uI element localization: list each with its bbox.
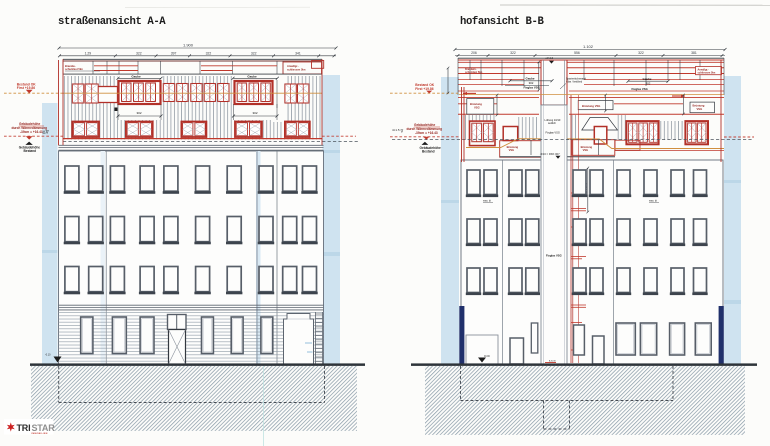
svg-text:1.29: 1.29	[85, 51, 92, 55]
svg-text:322: 322	[638, 51, 644, 55]
svg-text:Fixglas VSG: Fixglas VSG	[524, 86, 540, 90]
svg-text:max. dt: max. dt	[649, 200, 657, 203]
svg-text:Glas / beidbnd: Glas / beidbnd	[566, 81, 583, 84]
svg-text:IMMOBILIEN: IMMOBILIEN	[32, 433, 48, 435]
svg-text:VSG: VSG	[697, 107, 703, 111]
svg-text:STAR: STAR	[32, 423, 56, 433]
svg-text:Brüstung: Brüstung	[507, 145, 519, 149]
svg-text:397: 397	[171, 51, 177, 55]
svg-text:322: 322	[251, 51, 257, 55]
svg-text:381: 381	[691, 51, 697, 55]
svg-text:schliessen 5kn: schliessen 5kn	[698, 71, 716, 74]
svg-text:206: 206	[471, 51, 477, 55]
svg-text:1.102: 1.102	[583, 44, 594, 49]
svg-text:Gaube: Gaube	[131, 75, 141, 79]
svg-text:Anwdlgr.-: Anwdlgr.-	[287, 64, 299, 68]
svg-text:1.900: 1.900	[183, 42, 194, 47]
svg-text:First +19.86: First +19.86	[17, 86, 35, 90]
svg-text:First +19.86: First +19.86	[415, 87, 433, 91]
svg-text:-0.10: -0.10	[45, 354, 51, 357]
svg-text:302: 302	[252, 111, 257, 115]
svg-text:Bestand: Bestand	[422, 150, 435, 154]
svg-text:+24.13: +24.13	[545, 56, 554, 60]
svg-text:Brüstung: Brüstung	[581, 145, 593, 149]
svg-text:straßenansicht A-A: straßenansicht A-A	[58, 16, 166, 28]
svg-text:schliessen 5kn: schliessen 5kn	[287, 68, 306, 72]
svg-text:Δ∇: Δ∇	[43, 129, 50, 134]
svg-text:4×1.5: 4×1.5	[392, 128, 400, 132]
svg-text:-39cm = +16.43: -39cm = +16.43	[20, 130, 43, 134]
svg-text:±0.00: ±0.00	[484, 356, 490, 358]
svg-text:VSG: VSG	[509, 148, 514, 152]
svg-text:322: 322	[136, 51, 142, 55]
svg-text:Brüstung: Brüstung	[693, 104, 705, 108]
svg-text:VSG: VSG	[583, 148, 588, 152]
svg-text:Fixglas VSG: Fixglas VSG	[546, 253, 562, 257]
svg-text:∇: ∇	[400, 129, 404, 134]
svg-text:302: 302	[529, 81, 534, 85]
svg-text:seitlich: seitlich	[548, 121, 556, 125]
svg-text:-39cm = +16.43: -39cm = +16.43	[415, 131, 438, 135]
svg-text:Fixglas VSG: Fixglas VSG	[632, 87, 648, 91]
svg-text:max. dt: max. dt	[483, 200, 491, 203]
svg-text:Gaube: Gaube	[643, 77, 652, 81]
svg-text:322: 322	[206, 51, 212, 55]
svg-text:schutzlast 5kn: schutzlast 5kn	[65, 67, 83, 71]
svg-text:322: 322	[510, 51, 516, 55]
svg-text:schutzlast 5kn: schutzlast 5kn	[465, 71, 483, 74]
svg-text:302: 302	[646, 82, 651, 86]
svg-text:Gaube: Gaube	[247, 75, 257, 79]
svg-text:Brüstung: Brüstung	[470, 102, 482, 106]
svg-text:302: 302	[136, 111, 141, 115]
svg-text:TRI: TRI	[17, 423, 31, 433]
svg-text:556: 556	[574, 51, 580, 55]
svg-text:VSG: VSG	[474, 105, 480, 109]
svg-text:341: 341	[295, 51, 301, 55]
svg-text:Gaube: Gaube	[526, 77, 535, 81]
svg-text:Fixglas VSG: Fixglas VSG	[546, 130, 560, 134]
svg-text:hofansicht B-B: hofansicht B-B	[460, 16, 544, 28]
svg-text:Bestand: Bestand	[24, 149, 37, 153]
svg-text:Brüstung VSG: Brüstung VSG	[582, 104, 600, 108]
svg-text:-5/16 = RKK 007: -5/16 = RKK 007	[540, 152, 560, 156]
